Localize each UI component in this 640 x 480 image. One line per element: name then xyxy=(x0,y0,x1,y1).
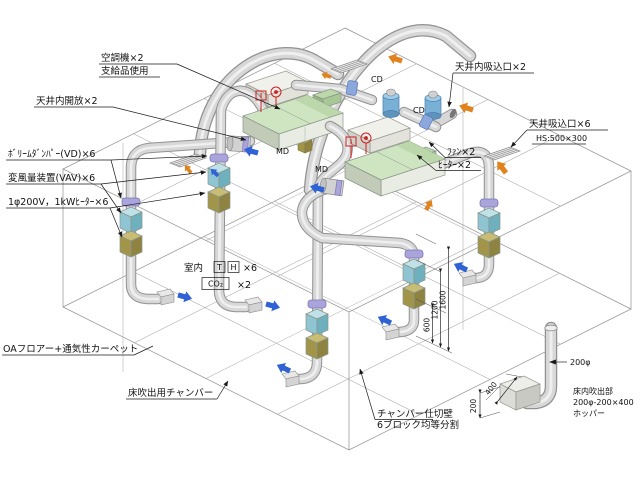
motor-damper-2 xyxy=(319,178,344,196)
fan-unit-1 xyxy=(383,89,399,118)
heater-count-label: ﾋｰﾀｰ×2 xyxy=(438,160,471,171)
dim-1600: 1600 xyxy=(439,290,448,309)
vav-label: 変風量装置(VAV)×6 xyxy=(8,172,95,184)
floor-outlet-label-line3: ホッパー xyxy=(573,409,605,418)
cd-tag-1: CD xyxy=(371,75,383,84)
partition-label-line1: チャンバー仕切壁 xyxy=(377,408,453,420)
floor-outlet-label-line1: 床内吹出部 xyxy=(573,386,613,396)
ceiling-plenum-intake-label: 天井内吸込口×2 xyxy=(455,61,526,73)
ahu-label-line2: 支給品使用 xyxy=(101,65,149,77)
md-tag-2: MD xyxy=(315,165,328,174)
floor-chamber-label: 床吹出用チャンバー xyxy=(128,387,213,399)
floor-outlet-detail xyxy=(500,325,557,410)
partition-label-line2: 6ブロック均等分割 xyxy=(377,419,459,431)
pipe-diameter-label: 200φ xyxy=(570,358,591,367)
sensor-co2-label: CO₂ xyxy=(208,280,223,289)
oa-floor-label: OAフロアー+通気性カーペット xyxy=(3,343,138,355)
sensor-h-label: H xyxy=(230,263,236,272)
riser-pipe-1 xyxy=(131,141,250,299)
fan-count-label: ﾌｧﾝ×2 xyxy=(447,147,475,158)
sensor-t-label: T xyxy=(216,263,222,272)
floor-outlet-label-line2: 200φ-200×400 xyxy=(573,398,634,407)
md-tag-1: MD xyxy=(276,147,289,156)
sensor-th-count: ×6 xyxy=(243,263,257,274)
cd-flex-coupling-1 xyxy=(346,80,358,95)
volume-damper-label: ﾎﾞﾘｰﾑﾀﾞﾝﾊﾟｰ(VD)×6 xyxy=(8,149,95,160)
room-sensor-prefix: 室内 xyxy=(184,262,203,274)
dim-200: 200 xyxy=(469,399,478,414)
ahu-label-line1: 空調機×2 xyxy=(101,52,144,64)
ceiling-open-label: 天井内開放×2 xyxy=(36,95,98,107)
cd-tag-2: CD xyxy=(413,106,425,115)
ceiling-intake-label-line1: 天井吸込口×6 xyxy=(529,118,591,130)
ceiling-intake-label-line2: HS:500×300 xyxy=(536,134,587,143)
sensor-co2-count: ×2 xyxy=(237,280,251,291)
dim-400: 400 xyxy=(483,380,499,397)
hvac-isometric-diagram: 600 1200 1600 400 200 200φ 空調機×2 支給品使用 天… xyxy=(0,0,640,480)
electric-heater-label: 1φ200V，1kWﾋｰﾀｰ×6 xyxy=(8,197,108,208)
